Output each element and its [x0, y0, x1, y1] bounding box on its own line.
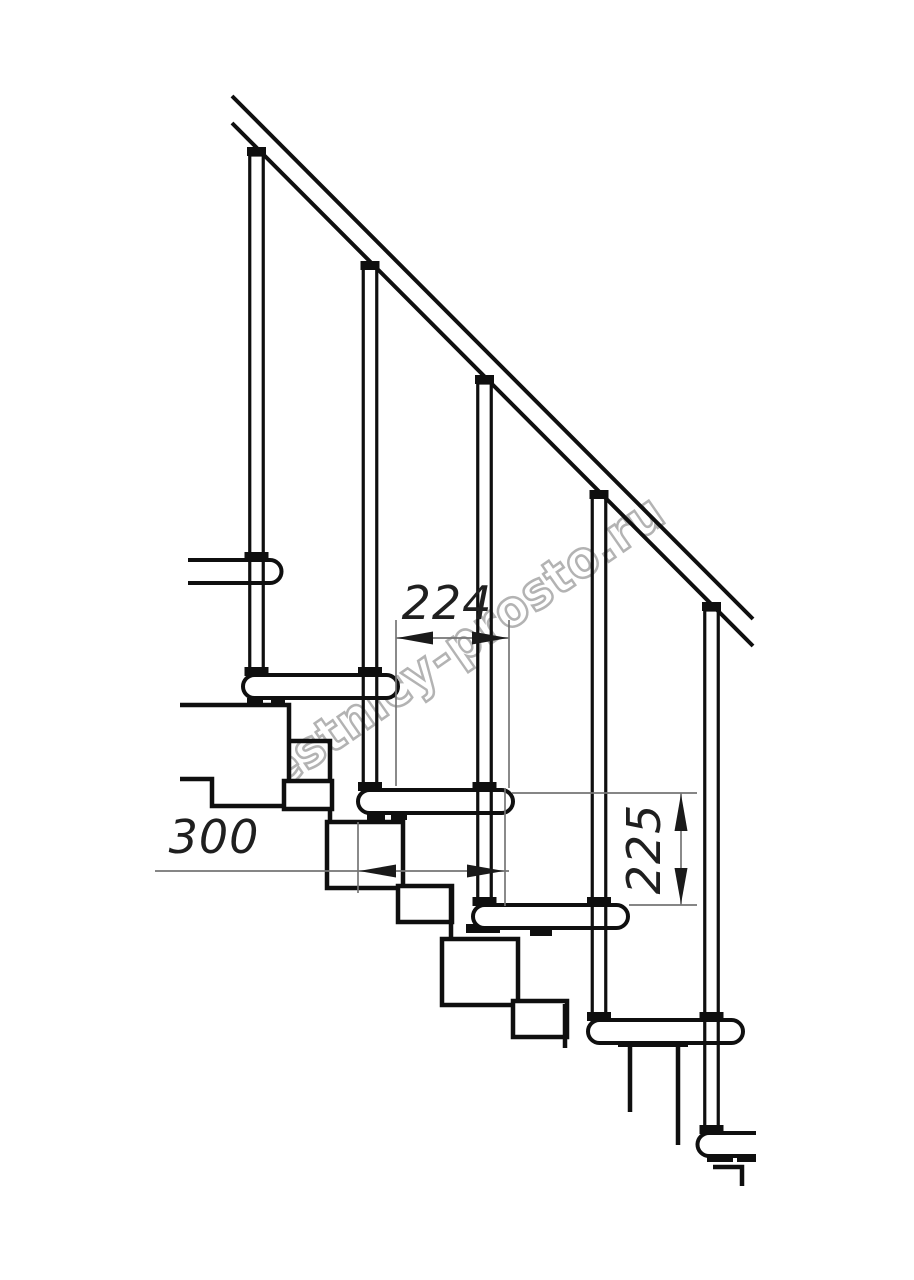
- module-1: [180, 705, 289, 806]
- baluster-collar: [587, 897, 611, 906]
- baluster-post: [705, 610, 719, 1133]
- module-2-plate: [398, 886, 452, 922]
- baluster-base-collar: [700, 1125, 724, 1134]
- tread-0: [188, 560, 282, 583]
- module-3: [442, 939, 518, 1005]
- baluster-collar: [245, 552, 269, 561]
- dimension-label-300: 300: [169, 810, 260, 864]
- module-3-plate: [513, 1001, 567, 1037]
- tread-5: [698, 1133, 757, 1156]
- modular-staircase-side-view: lestnicy-prosto.ru: [0, 0, 914, 1280]
- baluster-collar: [473, 782, 497, 791]
- tread-1: [243, 675, 398, 698]
- baluster-post: [250, 155, 264, 675]
- arrow-right: [467, 865, 504, 878]
- watermark-text: lestnicy-prosto.ru: [240, 483, 675, 810]
- dimension-label-224: 224: [402, 576, 493, 630]
- staircase-drawing-page: lestnicy-prosto.ru: [0, 0, 914, 1280]
- baluster-collar: [700, 1012, 724, 1021]
- baluster-base-collar: [473, 897, 497, 906]
- baluster-5: [700, 602, 724, 1134]
- module-1-plate: [284, 781, 332, 809]
- tread-5-bracket: [713, 1167, 742, 1186]
- baluster-base-collar: [358, 782, 382, 791]
- arrow-down: [675, 868, 688, 904]
- baluster-1: [245, 147, 269, 676]
- baluster-collar: [358, 667, 382, 676]
- dimension-label-225: 225: [617, 804, 671, 895]
- watermark: lestnicy-prosto.ru: [240, 483, 675, 810]
- arrow-up: [675, 794, 688, 831]
- baluster-base-collar: [245, 667, 269, 676]
- baluster-base-collar: [587, 1012, 611, 1021]
- module-chain: [180, 698, 756, 1186]
- module-2: [327, 822, 403, 888]
